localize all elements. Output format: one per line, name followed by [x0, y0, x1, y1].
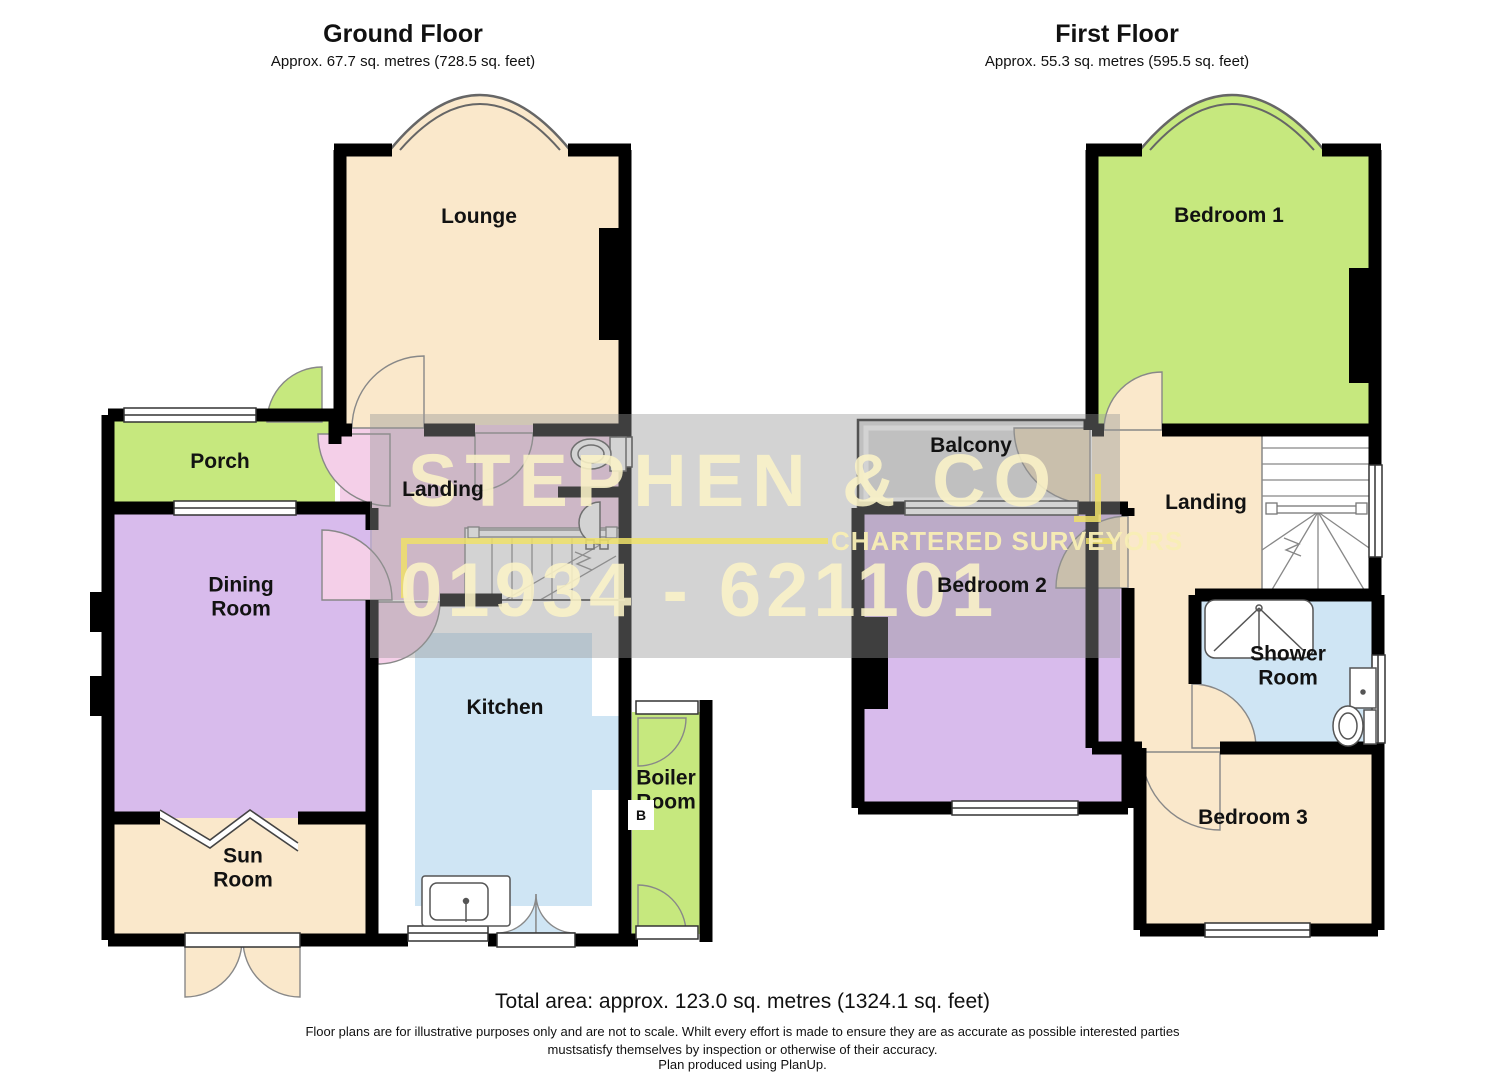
sun-room-door-left: [185, 940, 242, 997]
ground-floor-header: Ground Floor Approx. 67.7 sq. metres (72…: [153, 20, 653, 70]
lounge-chimney: [599, 228, 625, 340]
first-floor-subtitle: Approx. 55.3 sq. metres (595.5 sq. feet): [867, 53, 1367, 70]
bedroom3-label: Bedroom 3: [1198, 806, 1308, 830]
total-area-text: Total area: approx. 123.0 sq. metres (13…: [0, 990, 1485, 1014]
first-landing-label: Landing: [1165, 491, 1247, 515]
boiler-marker: B: [628, 800, 654, 830]
first-floor-title: First Floor: [867, 20, 1367, 49]
floorplan-page: STEPHEN & CO CHARTERED SURVEYORS 01934 -…: [0, 0, 1485, 1080]
bedroom2-label: Bedroom 2: [937, 574, 1047, 598]
kitchen-sink: [422, 876, 510, 926]
sun-room-door-right: [243, 940, 300, 997]
lounge-label: Lounge: [441, 205, 517, 229]
balcony-label: Balcony: [930, 434, 1012, 458]
floorplan-drawing: [0, 0, 1485, 1080]
plan-credit: Plan produced using PlanUp.: [0, 1057, 1485, 1072]
first-floor-header: First Floor Approx. 55.3 sq. metres (595…: [867, 20, 1367, 70]
disclaimer-line1: Floor plans are for illustrative purpose…: [0, 1024, 1485, 1039]
bedroom1-chimney: [1349, 268, 1375, 383]
first-floor-stairs: [1262, 432, 1372, 593]
watermark-phone: 01934 - 621101: [400, 547, 998, 634]
dining-chimney-upper: [90, 592, 108, 632]
kitchen-label: Kitchen: [466, 696, 543, 720]
shower-room-label: Shower Room: [1238, 642, 1338, 689]
dining-chimney-lower: [90, 676, 108, 716]
dining-room-label: Dining Room: [196, 573, 286, 620]
sun-room-label: Sun Room: [208, 844, 278, 891]
disclaimer-line2: mustsatisfy themselves by inspection or …: [0, 1042, 1485, 1057]
ground-floor-subtitle: Approx. 67.7 sq. metres (728.5 sq. feet): [153, 53, 653, 70]
bedroom1-label: Bedroom 1: [1174, 204, 1284, 228]
porch-label: Porch: [190, 450, 250, 474]
ground-floor-title: Ground Floor: [153, 20, 653, 49]
ground-landing-label: Landing: [402, 478, 484, 502]
